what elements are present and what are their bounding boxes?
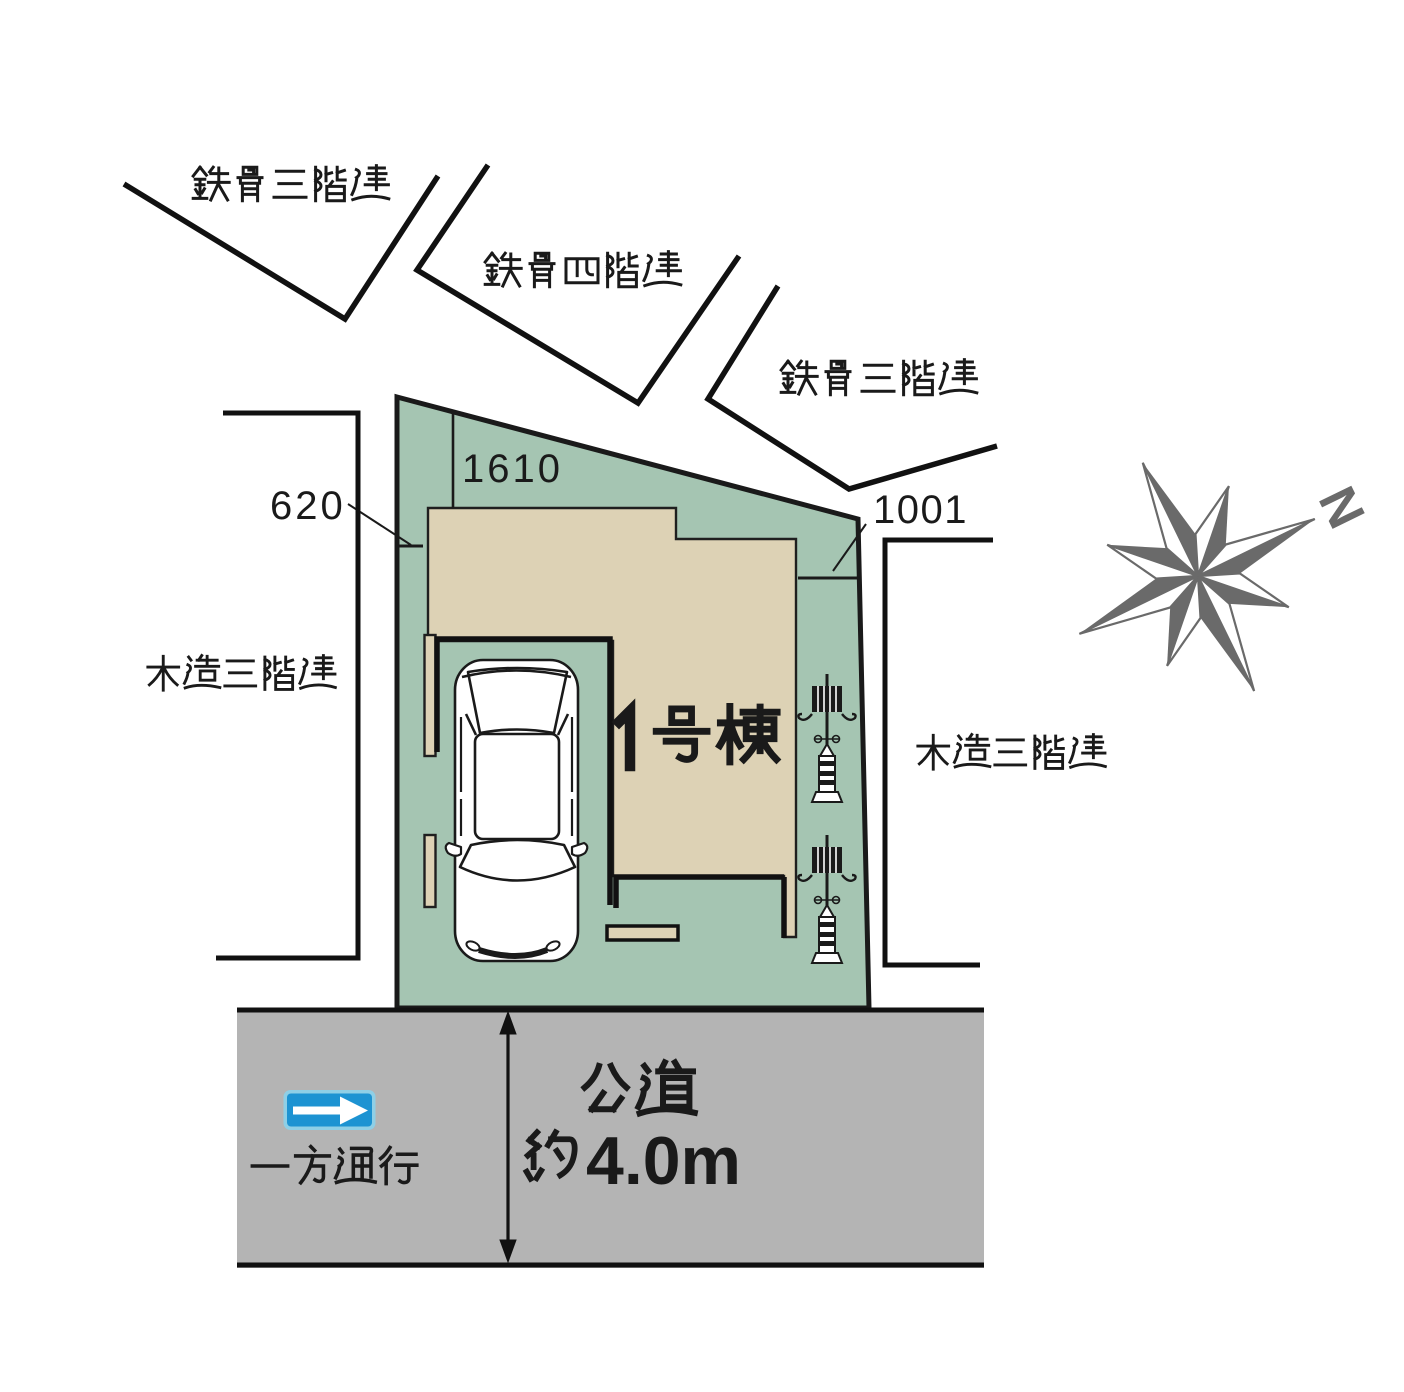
svg-text:N: N [1307, 478, 1376, 537]
svg-text:620: 620 [270, 484, 346, 528]
svg-text:4.0m: 4.0m [586, 1123, 741, 1199]
svg-text:1610: 1610 [462, 447, 563, 491]
svg-text:1001: 1001 [873, 488, 968, 532]
